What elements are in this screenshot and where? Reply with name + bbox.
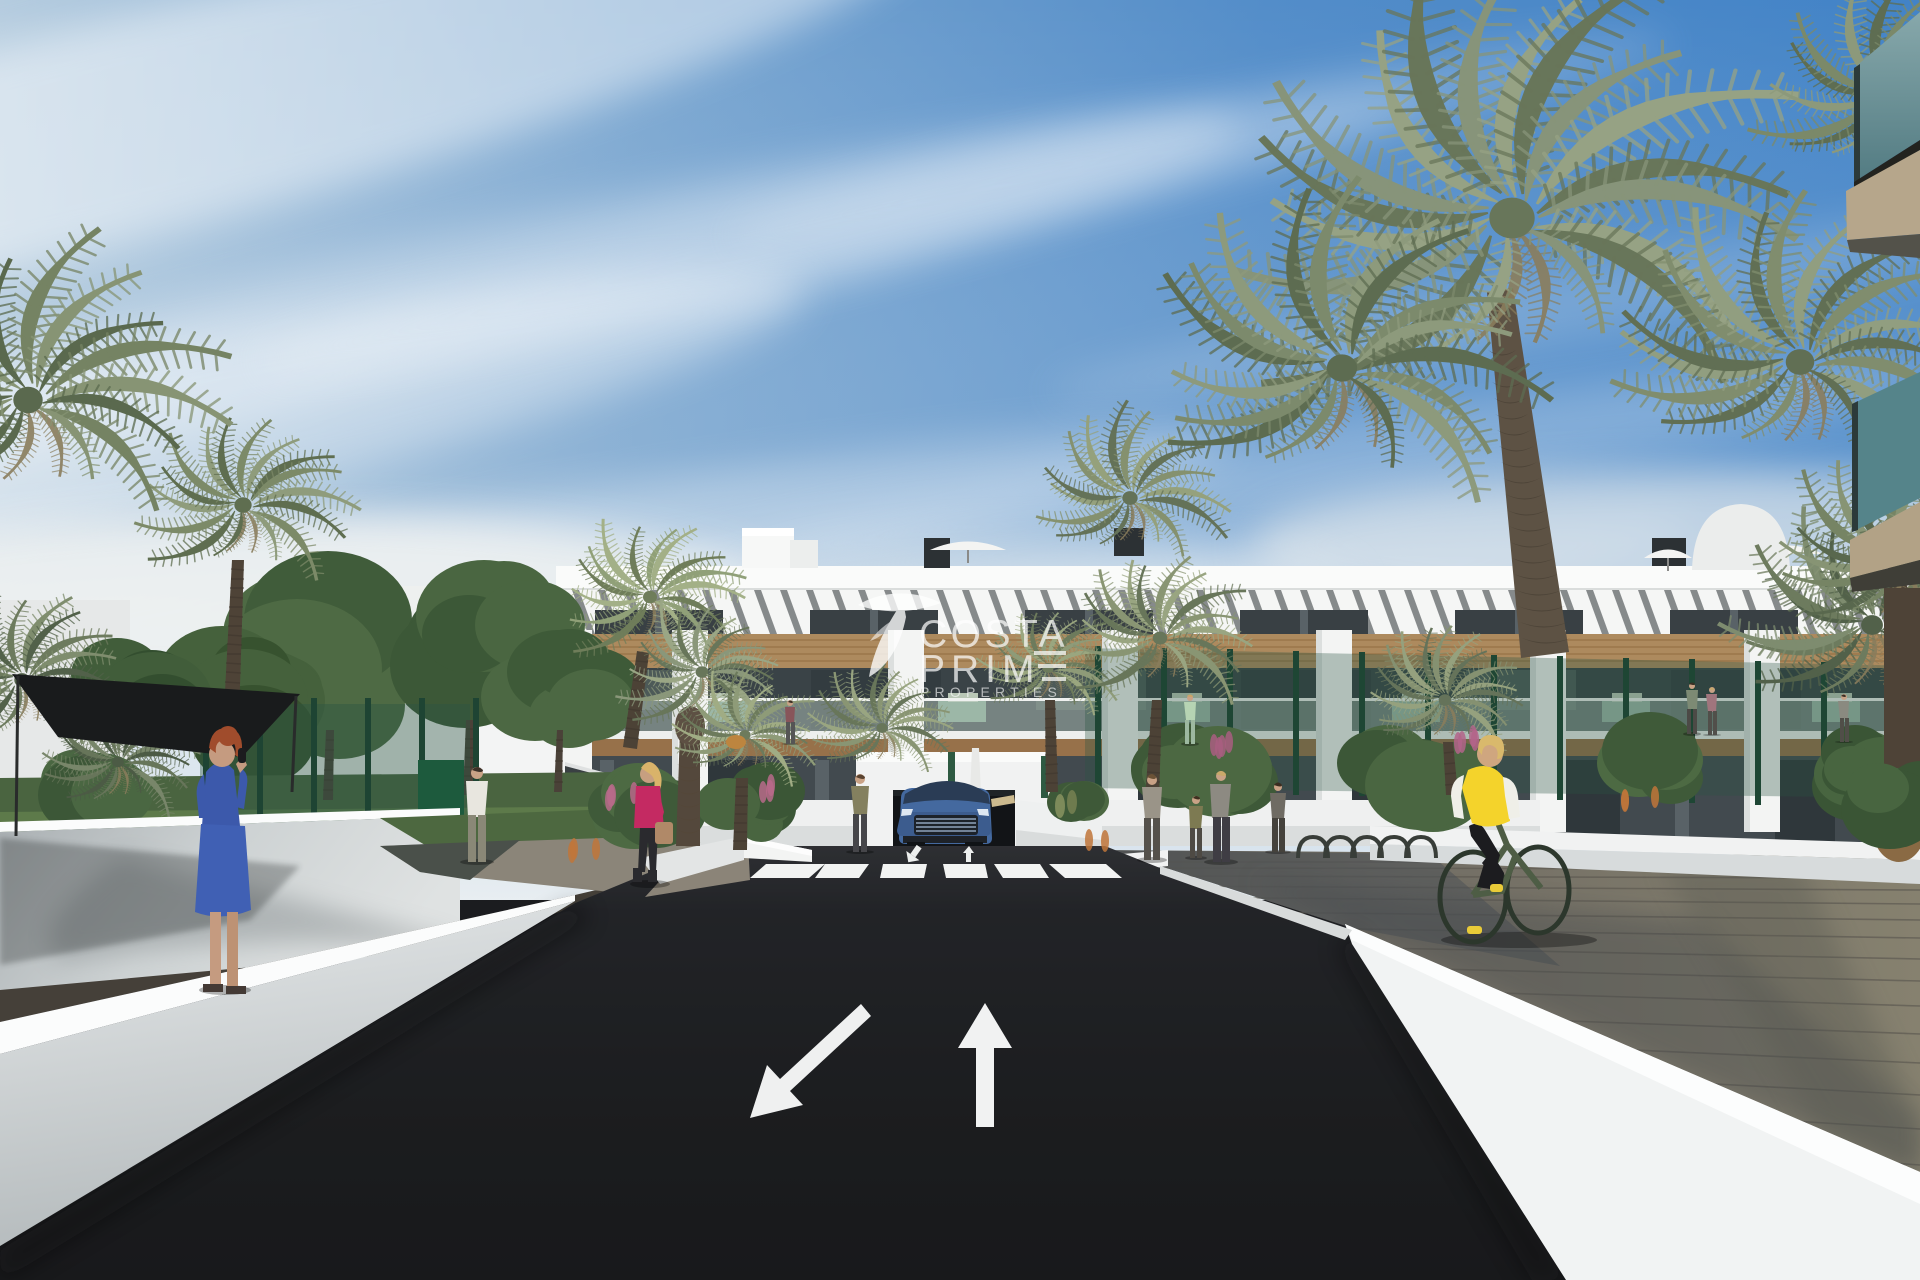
svg-text:PROPERTIES: PROPERTIES: [920, 684, 1062, 700]
